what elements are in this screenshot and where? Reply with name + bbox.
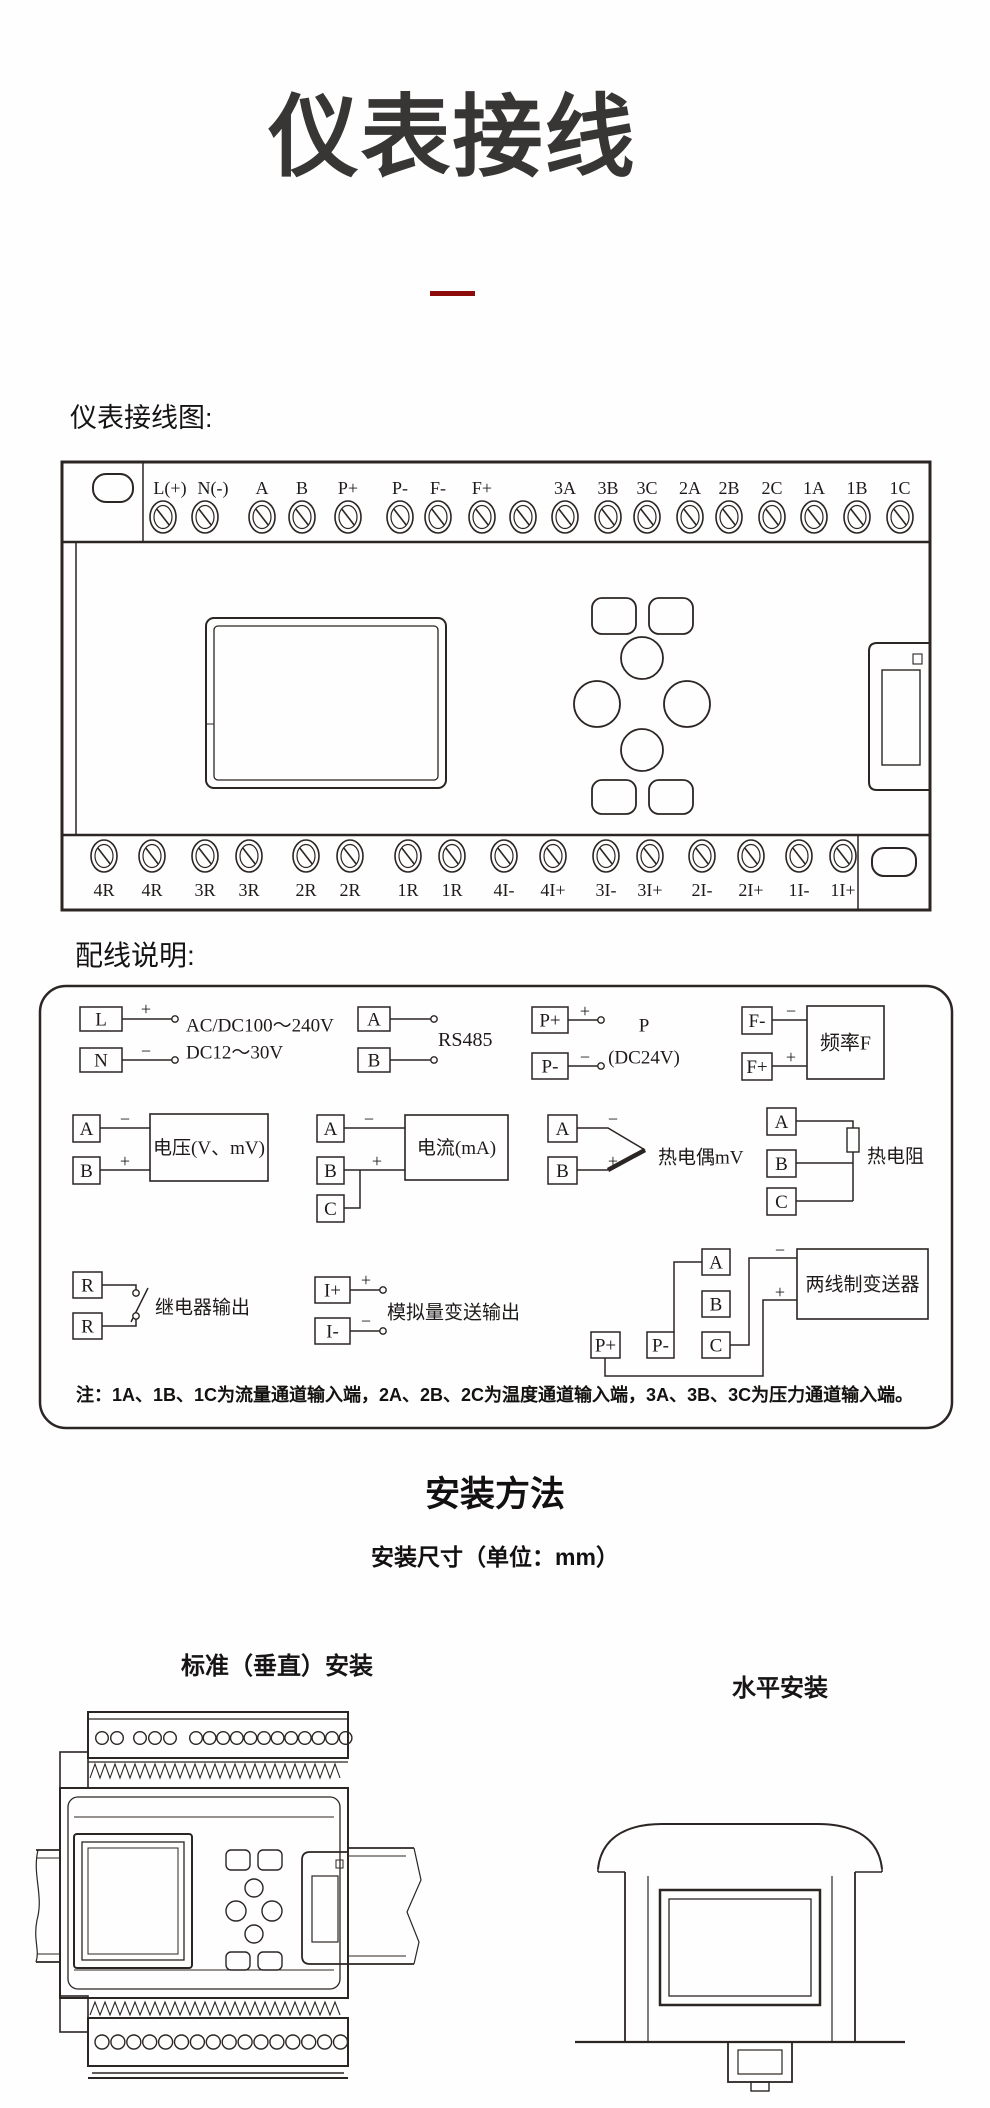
install-method-heading: 安装方法 bbox=[0, 1466, 990, 1517]
terminal-hole-icon bbox=[134, 1732, 147, 1745]
polarity-mark: − bbox=[120, 1109, 130, 1129]
terminal-hole-icon bbox=[96, 1732, 109, 1745]
terminal-box-label: I- bbox=[326, 1322, 339, 1343]
terminal-label: 3I+ bbox=[637, 880, 662, 900]
wire-end-terminal bbox=[133, 1290, 139, 1296]
screw-terminal-icon bbox=[293, 840, 319, 872]
terminal-label: 2I- bbox=[692, 880, 713, 900]
terminal-hole-icon bbox=[217, 1732, 230, 1745]
wiring-group-label: P bbox=[639, 1016, 650, 1037]
terminal-hole-icon bbox=[271, 1732, 284, 1745]
terminal-box-label: B bbox=[368, 1051, 381, 1072]
wire-end-terminal bbox=[431, 1057, 437, 1063]
terminal-label: L(+) bbox=[153, 478, 186, 499]
wire-end-terminal bbox=[598, 1017, 604, 1023]
screw-terminal-icon bbox=[335, 501, 361, 533]
terminal-label: P+ bbox=[338, 478, 358, 498]
terminal-hole-icon bbox=[222, 2035, 236, 2049]
wiring-diagram-heading: 仪表接线图: bbox=[70, 396, 213, 435]
terminal-label: 2C bbox=[761, 478, 782, 498]
screw-terminal-icon bbox=[192, 840, 218, 872]
terminal-hole-icon bbox=[254, 2035, 268, 2049]
screw-terminal-icon bbox=[887, 501, 913, 533]
screw-terminal-icon bbox=[469, 501, 495, 533]
polarity-mark: − bbox=[361, 1311, 371, 1331]
terminal-box-label: C bbox=[324, 1199, 337, 1220]
wire-end-terminal bbox=[598, 1063, 604, 1069]
polarity-mark: + bbox=[786, 1047, 796, 1067]
terminal-hole-icon bbox=[286, 2035, 300, 2049]
wire-end-terminal bbox=[172, 1016, 178, 1022]
wire bbox=[102, 1319, 136, 1326]
wire bbox=[577, 1128, 645, 1150]
key-down bbox=[621, 729, 663, 771]
terminal-label: P- bbox=[392, 478, 408, 498]
wire bbox=[796, 1121, 853, 1128]
terminal-box-label: A bbox=[367, 1010, 381, 1031]
key-cluster bbox=[574, 598, 710, 814]
wiring-notes-heading: 配线说明: bbox=[75, 934, 195, 974]
polarity-mark: − bbox=[608, 1109, 618, 1129]
terminal-label: A bbox=[256, 478, 269, 498]
terminal-hole-icon bbox=[339, 1732, 352, 1745]
vertical-install-label: 标准（垂直）安装 bbox=[181, 1646, 373, 1681]
wire-end-terminal bbox=[380, 1287, 386, 1293]
terminal-hole-icon bbox=[143, 2035, 157, 2049]
polarity-mark: + bbox=[361, 1270, 371, 1290]
din-clip-tab bbox=[728, 2042, 792, 2091]
din-rail-left bbox=[36, 1850, 60, 1962]
wiring-group-label: 继电器输出 bbox=[155, 1297, 250, 1319]
screw-terminal-icon bbox=[689, 840, 715, 872]
terminal-box-label: C bbox=[775, 1192, 788, 1213]
terminal-label: 1I- bbox=[789, 880, 810, 900]
screw-terminal-icon bbox=[510, 501, 536, 533]
device-box-label: 频率F bbox=[820, 1032, 871, 1055]
wire-end-terminal bbox=[172, 1057, 178, 1063]
terminal-hole-icon bbox=[231, 1732, 244, 1745]
screw-terminal-icon bbox=[491, 840, 517, 872]
terminal-label: 4R bbox=[93, 880, 114, 900]
terminal-label: 3A bbox=[554, 478, 576, 498]
screw-terminal-icon bbox=[249, 501, 275, 533]
screw-terminal-icon bbox=[192, 501, 218, 533]
screw-terminal-icon bbox=[677, 501, 703, 533]
terminal-box-label: P- bbox=[652, 1336, 669, 1357]
screw-terminal-icon bbox=[387, 501, 413, 533]
polarity-mark: + bbox=[141, 999, 151, 1019]
screw-terminal-icon bbox=[540, 840, 566, 872]
screw-terminal-icon bbox=[637, 840, 663, 872]
terminal-label: 4R bbox=[141, 880, 162, 900]
terminal-box-label: P+ bbox=[595, 1336, 616, 1357]
wire-end-terminal bbox=[380, 1328, 386, 1334]
polarity-mark: + bbox=[580, 1001, 590, 1021]
device-box-label: 电压(V、mV) bbox=[153, 1137, 265, 1159]
terminal-label: 3R bbox=[238, 880, 259, 900]
screw-terminal-icon bbox=[759, 501, 785, 533]
terminal-hole-icon bbox=[270, 2035, 284, 2049]
terminal-hole-icon bbox=[299, 1732, 312, 1745]
device-box-label: 电流(mA) bbox=[417, 1137, 496, 1159]
display-window bbox=[660, 1890, 820, 2005]
screw-terminal-icon bbox=[139, 840, 165, 872]
install-dimensions-subheading: 安装尺寸（单位：mm） bbox=[0, 1538, 990, 1572]
din-clip-dome bbox=[598, 1824, 882, 1869]
terminal-hole-icon bbox=[127, 2035, 141, 2049]
screw-terminal-icon bbox=[716, 501, 742, 533]
terminal-box-label: F- bbox=[749, 1011, 766, 1032]
terminal-box-label: L bbox=[95, 1010, 107, 1031]
wire bbox=[674, 1262, 702, 1332]
polarity-mark: + bbox=[120, 1151, 130, 1171]
polarity-mark: + bbox=[372, 1151, 382, 1171]
bottom-terminal-screws bbox=[91, 840, 856, 872]
side-connector bbox=[869, 643, 930, 790]
terminal-hole-icon bbox=[175, 2035, 189, 2049]
terminal-box-label: N bbox=[94, 1051, 108, 1072]
terminal-box-label: B bbox=[775, 1154, 788, 1175]
terminal-box-label: P- bbox=[542, 1057, 559, 1078]
terminal-box-label: B bbox=[710, 1295, 723, 1316]
terminal-hole-icon bbox=[159, 2035, 173, 2049]
terminal-hole-icon bbox=[318, 2035, 332, 2049]
screw-terminal-icon bbox=[844, 501, 870, 533]
terminal-label: 3I- bbox=[596, 880, 617, 900]
terminal-label: 1A bbox=[803, 478, 825, 498]
panel-border bbox=[40, 986, 952, 1428]
top-terminal-labels: L(+)N(-)ABP+P-F-F+3A3B3C2A2B2C1A1B1C bbox=[153, 478, 910, 499]
wiring-group-label: RS485 bbox=[438, 1029, 492, 1051]
key-top-left bbox=[592, 598, 636, 634]
terminal-hole-icon bbox=[190, 2035, 204, 2049]
terminal-hole-icon bbox=[334, 2035, 348, 2049]
wire-end-terminal bbox=[431, 1016, 437, 1022]
terminal-box-label: B bbox=[556, 1161, 569, 1182]
terminal-box-label: I+ bbox=[324, 1281, 341, 1302]
key-cluster bbox=[226, 1850, 282, 1970]
terminal-box-label: A bbox=[80, 1119, 94, 1140]
terminal-label: 1R bbox=[397, 880, 418, 900]
terminal-box-label: R bbox=[81, 1276, 94, 1297]
terminal-label: N(-) bbox=[198, 478, 229, 499]
terminal-box-label: A bbox=[709, 1253, 723, 1274]
terminal-label: 2B bbox=[718, 478, 739, 498]
wiring-group-label: 热电阻 bbox=[867, 1146, 924, 1168]
mount-hole-top-left bbox=[93, 474, 133, 502]
wiring-notes-panel: LNABP+P-F-F+ABABCABABCRRI+I-ABCP+P-频率F电压… bbox=[36, 982, 956, 1432]
screw-terminal-icon bbox=[289, 501, 315, 533]
screw-terminal-icon bbox=[830, 840, 856, 872]
wiring-group-label: 模拟量变送输出 bbox=[387, 1302, 520, 1324]
terminal-label: 3C bbox=[636, 478, 657, 498]
terminal-label: F- bbox=[430, 478, 446, 498]
terminal-label: 1I+ bbox=[830, 880, 855, 900]
page: 仪表接线 仪表接线图: bbox=[0, 0, 990, 2108]
key-left bbox=[574, 681, 620, 727]
terminal-label: 2R bbox=[339, 880, 360, 900]
polarity-mark: − bbox=[775, 1240, 785, 1260]
resistor-symbol bbox=[847, 1128, 859, 1152]
terminal-label: 3B bbox=[597, 478, 618, 498]
screw-terminal-icon bbox=[552, 501, 578, 533]
screw-terminal-icon bbox=[236, 840, 262, 872]
terminal-hole-icon bbox=[326, 1732, 339, 1745]
terminal-label: 1R bbox=[441, 880, 462, 900]
terminal-hole-icon bbox=[164, 1732, 177, 1745]
display-window bbox=[74, 1834, 192, 1968]
vertical-install-drawing bbox=[30, 1700, 425, 2090]
key-bottom-right bbox=[649, 780, 693, 814]
device-box-label: 两线制变送器 bbox=[805, 1274, 919, 1296]
terminal-label: B bbox=[296, 478, 308, 498]
wiring-group-label: 热电偶mV bbox=[658, 1147, 744, 1169]
screw-terminal-icon bbox=[786, 840, 812, 872]
horizontal-install-label: 水平安装 bbox=[732, 1668, 828, 1703]
terminal-box-label: F+ bbox=[746, 1057, 767, 1078]
terminal-box-label: B bbox=[324, 1161, 337, 1182]
terminal-label: 1B bbox=[846, 478, 867, 498]
screw-terminal-icon bbox=[738, 840, 764, 872]
bottom-terminal-labels: 4R4R3R3R2R2R1R1R4I-4I+3I-3I+2I-2I+1I-1I+ bbox=[93, 880, 855, 900]
screw-terminal-icon bbox=[593, 840, 619, 872]
terminal-hole-icon bbox=[190, 1732, 203, 1745]
terminal-box-label: A bbox=[556, 1119, 570, 1140]
screw-terminal-icon bbox=[801, 501, 827, 533]
terminal-box-label: P+ bbox=[539, 1011, 560, 1032]
terminal-hole-icon bbox=[95, 2035, 109, 2049]
terminal-hole-icon bbox=[111, 1732, 124, 1745]
polarity-mark: + bbox=[608, 1151, 618, 1171]
terminal-label: 2R bbox=[295, 880, 316, 900]
terminal-hole-icon bbox=[111, 2035, 125, 2049]
wire bbox=[344, 1170, 360, 1208]
terminal-hole-icon bbox=[203, 1732, 216, 1745]
page-title: 仪表接线 bbox=[0, 64, 905, 194]
screw-terminal-icon bbox=[425, 501, 451, 533]
top-terminal-screws bbox=[150, 501, 913, 533]
wire bbox=[605, 1300, 797, 1376]
display-window bbox=[206, 618, 446, 788]
wire-end-terminal bbox=[133, 1313, 139, 1319]
wiring-group-label: DC12～30V bbox=[186, 1043, 283, 1064]
terminal-box-label: C bbox=[710, 1336, 723, 1357]
terminal-label: 2A bbox=[679, 478, 701, 498]
terminal-hole-icon bbox=[149, 1732, 162, 1745]
horizontal-install-drawing bbox=[565, 1805, 915, 2105]
key-right bbox=[664, 681, 710, 727]
terminal-label: 3R bbox=[194, 880, 215, 900]
side-connector bbox=[302, 1852, 348, 1964]
terminal-box-label: R bbox=[81, 1317, 94, 1338]
key-top-right bbox=[649, 598, 693, 634]
terminal-label: 4I+ bbox=[540, 880, 565, 900]
terminal-hole-icon bbox=[206, 2035, 220, 2049]
screw-terminal-icon bbox=[439, 840, 465, 872]
channel-note: 注：1A、1B、1C为流量通道输入端，2A、2B、2C为温度通道输入端，3A、3… bbox=[76, 1384, 913, 1405]
screw-terminal-icon bbox=[395, 840, 421, 872]
wiring-group-label: (DC24V) bbox=[608, 1048, 680, 1069]
key-bottom-left bbox=[592, 780, 636, 814]
polarity-mark: − bbox=[141, 1041, 151, 1061]
wiring-group-label: AC/DC100～240V bbox=[186, 1016, 334, 1037]
terminal-label: 4I- bbox=[494, 880, 515, 900]
terminal-hole-icon bbox=[244, 1732, 257, 1745]
terminal-box-label: B bbox=[80, 1161, 93, 1182]
terminal-box-label: A bbox=[775, 1112, 789, 1133]
title-underline bbox=[430, 291, 475, 296]
terminal-label: 1C bbox=[889, 478, 910, 498]
screw-terminal-icon bbox=[91, 840, 117, 872]
terminal-box-label: A bbox=[324, 1119, 338, 1140]
polarity-mark: − bbox=[786, 1001, 796, 1021]
screw-terminal-icon bbox=[150, 501, 176, 533]
terminal-hole-icon bbox=[258, 1732, 271, 1745]
terminal-hole-icon bbox=[312, 1732, 325, 1745]
terminal-hole-icon bbox=[285, 1732, 298, 1745]
terminal-label: F+ bbox=[472, 478, 492, 498]
polarity-mark: − bbox=[364, 1109, 374, 1129]
wire bbox=[102, 1285, 136, 1290]
din-rail-right bbox=[348, 1848, 421, 1964]
terminal-hole-icon bbox=[238, 2035, 252, 2049]
screw-terminal-icon bbox=[595, 501, 621, 533]
polarity-mark: − bbox=[580, 1047, 590, 1067]
key-up bbox=[621, 637, 663, 679]
terminal-hole-icon bbox=[302, 2035, 316, 2049]
mount-hole-bottom-right bbox=[872, 848, 916, 876]
screw-terminal-icon bbox=[337, 840, 363, 872]
screw-terminal-icon bbox=[634, 501, 660, 533]
polarity-mark: + bbox=[775, 1282, 785, 1302]
terminal-label: 2I+ bbox=[738, 880, 763, 900]
instrument-wiring-diagram: L(+)N(-)ABP+P-F-F+3A3B3C2A2B2C1A1B1C 4R4… bbox=[55, 458, 935, 915]
